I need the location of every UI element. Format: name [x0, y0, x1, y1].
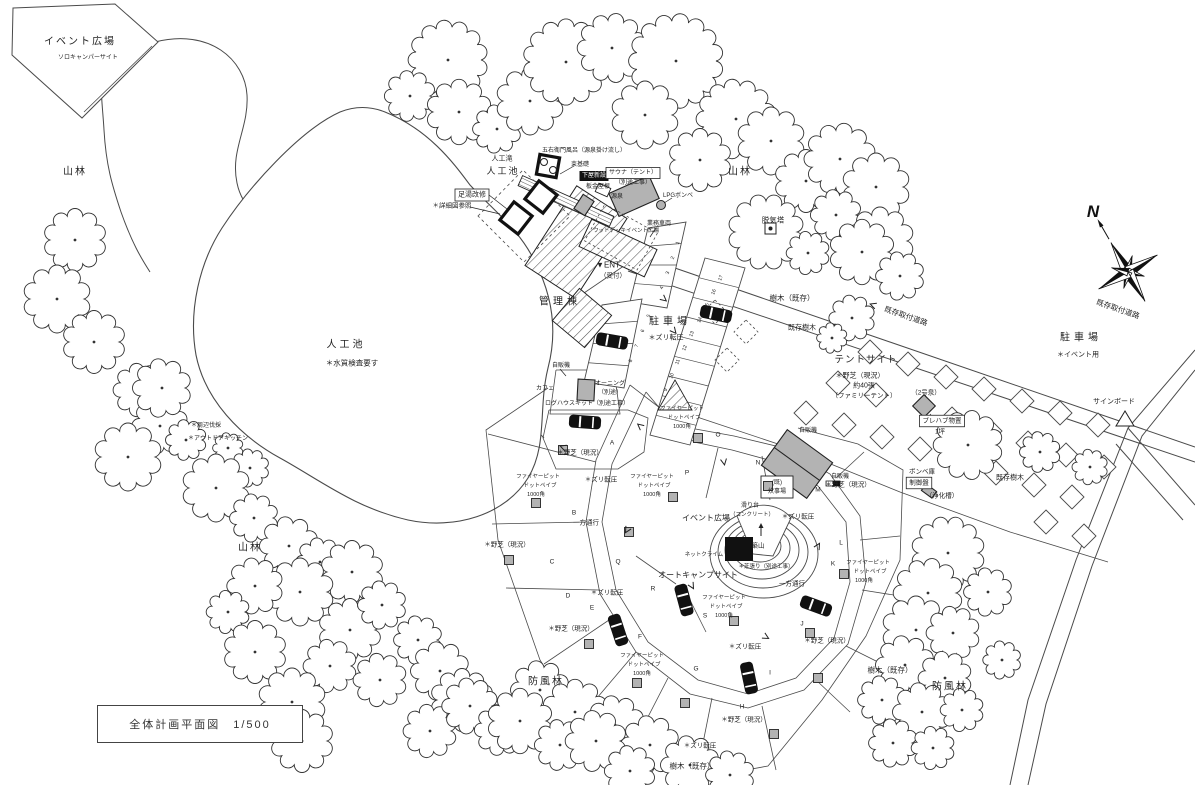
- tree-center-dot: [469, 705, 472, 708]
- map-label: ドットペイブ: [709, 602, 743, 610]
- map-label: （受付）: [600, 271, 626, 280]
- map-label: ＊ズリ転圧: [649, 333, 684, 342]
- site-line: [816, 680, 850, 712]
- tree-center-dot: [93, 341, 96, 344]
- map-label: ＊ズリ転圧: [591, 588, 624, 597]
- map-label: ＊野芝（現況）: [804, 636, 850, 645]
- tent-pad: [1060, 485, 1084, 509]
- tree-center-dot: [881, 699, 884, 702]
- map-label: 防風林: [932, 680, 968, 693]
- road-direction-mark: [721, 459, 728, 466]
- map-label: 既存取付道路: [883, 303, 929, 327]
- fire-pit: [694, 434, 703, 443]
- map-label: サウナ（テント）: [609, 168, 657, 176]
- fire-pit: [585, 640, 594, 649]
- tree-center-dot: [288, 545, 291, 548]
- road-edge: [1128, 428, 1195, 505]
- map-label: ＊ズリ転圧: [782, 512, 815, 521]
- tree-center-dot: [351, 571, 354, 574]
- gray-structure: [913, 395, 936, 418]
- map-label: ファイヤーピット: [660, 405, 704, 412]
- map-label: ＊野芝（現況）: [557, 448, 603, 457]
- map-label: ウッドデッキイベント広場: [593, 226, 660, 234]
- north-label: N: [1087, 202, 1100, 221]
- map-label: ドットペイブ: [637, 481, 671, 489]
- car-symbol: [799, 594, 834, 617]
- stall-number: 6: [640, 328, 647, 333]
- stall-number: 5: [646, 313, 653, 318]
- tent-pad: [908, 437, 932, 461]
- map-label: 人工池: [486, 165, 519, 176]
- tree-center-dot: [805, 180, 808, 183]
- fire-pit: [806, 629, 815, 638]
- map-label: ドットペイブ: [523, 481, 557, 489]
- site-letter: O: [715, 432, 720, 439]
- map-label: オートキャンプサイト: [658, 571, 738, 580]
- tree-center-dot: [835, 214, 838, 217]
- tree-center-dot: [291, 701, 294, 704]
- site-letter: K: [831, 561, 836, 568]
- tree-center-dot: [644, 114, 647, 117]
- title-text: 全体計画平面図 1/500: [129, 716, 271, 732]
- tree-center-dot: [961, 709, 964, 712]
- map-label: 源泉: [611, 192, 623, 200]
- gray-structure: [577, 379, 595, 401]
- map-label: 自販機: [799, 426, 817, 434]
- tree-center-dot: [319, 561, 322, 564]
- tent-pad: [972, 377, 996, 401]
- map-label: ＊詳細図参照: [433, 201, 473, 210]
- title-block: 全体計画平面図 1/500: [97, 705, 303, 743]
- site-letter: B: [572, 510, 576, 517]
- map-label: ファイヤーピット: [702, 594, 746, 601]
- tree-center-dot: [496, 128, 499, 131]
- site-letter: I: [769, 670, 771, 677]
- car-symbol: [674, 583, 695, 617]
- tree-center-dot: [574, 711, 577, 714]
- map-label: 樹木（既存）: [670, 761, 715, 771]
- map-label: 1000角: [715, 611, 733, 619]
- tree-center-dot: [861, 251, 864, 254]
- car-body: [799, 594, 834, 617]
- tree-center-dot: [770, 140, 773, 143]
- map-label: プレハブ物置: [923, 416, 963, 425]
- tree-center-dot: [952, 632, 955, 635]
- tree-center-dot: [699, 159, 702, 162]
- map-label: 既存樹木: [788, 323, 816, 332]
- tree-center-dot: [539, 689, 542, 692]
- tent-pad: [896, 352, 920, 376]
- tree-center-dot: [439, 670, 442, 673]
- tree-center-dot: [161, 387, 164, 390]
- map-label: ＊野芝（現況）: [836, 371, 885, 380]
- tree-center-dot: [987, 591, 990, 594]
- tree-center-dot: [565, 61, 568, 64]
- map-label: 制御盤: [909, 478, 929, 487]
- site-letter: E: [590, 605, 595, 612]
- tree-center-dot: [1089, 466, 1092, 469]
- map-label: （別途）: [598, 388, 622, 396]
- site-line: [706, 448, 718, 498]
- map-label: 築山: [752, 541, 765, 550]
- fire-pit: [681, 699, 690, 708]
- tent-pad: [794, 401, 818, 425]
- map-label: 山林: [63, 165, 87, 178]
- map-label: 既存樹木: [996, 473, 1024, 482]
- site-letter: R: [651, 586, 656, 593]
- tree-center-dot: [629, 770, 632, 773]
- road-edge: [1116, 444, 1183, 520]
- map-label: ファイヤーピット: [620, 652, 664, 659]
- tree-center-dot: [254, 651, 257, 654]
- site-letter: D: [566, 593, 571, 600]
- road-direction-mark: [636, 422, 644, 430]
- fire-pit: [814, 674, 823, 683]
- site-letter: S: [703, 613, 708, 620]
- fire-pit: [505, 556, 514, 565]
- map-label: 樹木（既存）: [868, 665, 913, 675]
- map-label: 人工滝: [492, 154, 513, 163]
- road-direction-mark: [762, 633, 770, 641]
- map-label: 防風林: [528, 675, 564, 688]
- map-label: 一方通行: [573, 518, 600, 527]
- tree-center-dot: [892, 742, 895, 745]
- map-label: 樹木（既存）: [770, 293, 815, 303]
- map-label: 自販機: [552, 361, 570, 369]
- map-label: 1坪: [935, 428, 946, 436]
- tree-center-dot: [807, 252, 810, 255]
- site-letter: P: [685, 470, 689, 477]
- tree-center-dot: [921, 711, 924, 714]
- map-label: 約40張: [853, 381, 875, 390]
- car-rear-window: [593, 417, 594, 428]
- car-body: [569, 414, 602, 429]
- map-label: 1000角: [855, 576, 873, 584]
- fire-pit: [840, 570, 849, 579]
- map-label: 1000角: [633, 669, 651, 677]
- map-label: ＊ズリ転圧: [729, 642, 762, 651]
- tree-center-dot: [967, 444, 970, 447]
- site-letter: G: [693, 666, 698, 673]
- car-body: [607, 613, 629, 647]
- tree-center-dot: [215, 487, 218, 490]
- road-direction-mark: [688, 582, 696, 590]
- net-climb-box: [725, 537, 753, 561]
- fire-pit: [633, 679, 642, 688]
- map-label: ネットクライム: [685, 551, 724, 558]
- tree-center-dot: [675, 60, 678, 63]
- tree-center-dot: [417, 639, 420, 642]
- map-label: ドットペイブ: [667, 413, 701, 421]
- site-letter: C: [550, 559, 555, 566]
- map-label: 駐車場: [1060, 331, 1102, 344]
- map-label: イベント広場: [44, 35, 116, 48]
- tree-center-dot: [379, 679, 382, 682]
- map-label: 1000角: [673, 422, 691, 430]
- tree-center-dot: [299, 591, 302, 594]
- tree-center-dot: [56, 298, 59, 301]
- road-edge: [1028, 370, 1195, 785]
- site-letter: F: [638, 634, 642, 641]
- fire-pit: [669, 493, 678, 502]
- tree-center-dot: [649, 744, 652, 747]
- map-label: ログハウスキット（別途工事）: [545, 399, 629, 407]
- map-label: 管理棟: [539, 295, 581, 308]
- map-label: 束基礎: [571, 160, 589, 168]
- tree-center-dot: [381, 604, 384, 607]
- map-label: ＊野芝（現況）: [825, 480, 871, 489]
- map-label: ファイヤーピット: [630, 473, 674, 480]
- tree-center-dot: [429, 730, 432, 733]
- map-label: 足湯改修: [458, 190, 486, 199]
- tree-center-dot: [74, 239, 77, 242]
- car-symbol: [569, 414, 602, 429]
- lpg-tank-icon: [657, 201, 666, 210]
- map-label: ＊芝張り（別途工事）: [738, 562, 793, 570]
- tent-pad: [934, 365, 958, 389]
- tree-center-dot: [249, 467, 252, 470]
- bath-structure: [536, 154, 559, 177]
- tree-center-dot: [409, 95, 412, 98]
- tree-center-dot: [1039, 451, 1042, 454]
- site-plan-page: Nイベント広場ソロキャンパーサイト山林山林山林人工滝人工池足湯改修＊詳細図参照人…: [0, 0, 1195, 785]
- tree-center-dot: [1001, 659, 1004, 662]
- map-label: 1000角: [527, 490, 545, 498]
- map-label: ▼ENT: [596, 261, 620, 270]
- tent-pad: [1034, 510, 1058, 534]
- tree-center-dot: [447, 59, 450, 62]
- tent-pad: [832, 413, 856, 437]
- tree-center-dot: [915, 629, 918, 632]
- map-label: イベント広場: [682, 513, 730, 523]
- map-label: 一方通行: [779, 579, 806, 588]
- map-label: ＊周辺伐採: [191, 421, 221, 429]
- map-label: ボンベ庫: [909, 467, 936, 476]
- tree-center-dot: [253, 517, 256, 520]
- car-symbol: [607, 613, 629, 647]
- map-label: 1000角: [643, 490, 661, 498]
- map-label: LPGボンベ: [663, 191, 693, 199]
- tent-pad: [1010, 389, 1034, 413]
- tree-center-dot: [839, 158, 842, 161]
- tree-center-dot: [899, 275, 902, 278]
- site-letter: H: [740, 704, 745, 711]
- car-body: [739, 661, 758, 695]
- tree-center-dot: [947, 552, 950, 555]
- map-label: ＊水質検査要す: [326, 358, 379, 368]
- tent-pad: [1072, 524, 1096, 548]
- tree-center-dot: [329, 665, 332, 668]
- site-line: [860, 536, 900, 540]
- map-label: テントサイト: [834, 355, 897, 366]
- map-label: ＊野芝（現況）: [484, 540, 530, 549]
- map-label: 炊事場: [768, 487, 786, 495]
- site-letter: L: [839, 540, 843, 547]
- tree-center-dot: [458, 111, 461, 114]
- map-label: カフェ: [536, 385, 554, 392]
- map-label: ソロキャンパーサイト: [58, 54, 118, 61]
- site-line: [506, 588, 600, 590]
- map-label: （ファミリーテント）: [832, 392, 897, 400]
- map-label: （浄化槽）: [926, 491, 959, 500]
- map-label: サインボード: [1093, 398, 1135, 406]
- car-body: [674, 583, 695, 617]
- map-label: 滑り台: [741, 501, 759, 509]
- site-line: [492, 522, 586, 524]
- tree-center-dot: [254, 585, 257, 588]
- car-windshield: [580, 416, 581, 427]
- tree-center-dot: [875, 186, 878, 189]
- tree-center-dot: [227, 611, 230, 614]
- stall-number: 7: [634, 343, 641, 348]
- tent-pad: [1022, 473, 1046, 497]
- map-label: ファイヤーピット: [846, 559, 890, 566]
- map-label: ファイヤーピット: [516, 473, 560, 480]
- map-label: （2号泉）: [911, 388, 941, 397]
- tent-pad-dashed: [734, 320, 758, 344]
- tree-center-dot: [851, 317, 854, 320]
- map-label: ＊イベント用: [1057, 351, 1099, 359]
- map-label: ドットペイブ: [853, 567, 887, 575]
- site-letter: N: [756, 460, 761, 467]
- map-label: 既存取付道路: [1095, 296, 1141, 320]
- map-label: 板金屋根: [586, 182, 610, 190]
- stall-number: 8: [628, 358, 635, 363]
- map-label: (既): [772, 479, 782, 486]
- degassing-tower-dot: [769, 227, 773, 231]
- site-letter: J: [800, 621, 803, 628]
- map-label: ＊アウトドアキッチン: [188, 434, 248, 442]
- map-label: ドットペイブ: [627, 660, 661, 668]
- car-symbol: [739, 661, 758, 695]
- map-label: （コンクリート）: [730, 511, 774, 518]
- tree-center-dot: [185, 439, 188, 442]
- map-label: 下屋新設: [582, 171, 606, 179]
- map-label: ＊ズリ転圧: [684, 741, 717, 750]
- signboard-triangle: [1116, 411, 1134, 426]
- map-label: ＊ズリ転圧: [585, 475, 618, 484]
- tree-center-dot: [611, 47, 614, 50]
- tree-center-dot: [729, 774, 732, 777]
- tree-center-dot: [159, 425, 162, 428]
- tree-center-dot: [927, 592, 930, 595]
- map-label: ＊野芝（現況）: [721, 715, 767, 724]
- map-label: 山林: [728, 165, 752, 178]
- tree-center-dot: [831, 337, 834, 340]
- tree-center-dot: [735, 118, 738, 121]
- map-label: 五右衛門風呂（源泉掛け流し）: [542, 146, 626, 154]
- tree-center-dot: [559, 744, 562, 747]
- map-label: 自販機: [831, 472, 849, 480]
- map-label: ＊野芝（現況）: [548, 624, 594, 633]
- tent-pad: [1048, 401, 1072, 425]
- tree-center-dot: [349, 629, 352, 632]
- map-label: 脱気塔: [762, 215, 785, 225]
- site-letter: Q: [615, 559, 620, 566]
- tree-center-dot: [519, 720, 522, 723]
- site-plan-drawing: Nイベント広場ソロキャンパーサイト山林山林山林人工滝人工池足湯改修＊詳細図参照人…: [0, 0, 1195, 785]
- map-label: 駐車場: [649, 315, 691, 328]
- fire-pit: [532, 499, 541, 508]
- tree-center-dot: [944, 677, 947, 680]
- tent-pad: [870, 425, 894, 449]
- site-letter: M: [815, 487, 820, 494]
- map-label: （別途工事）: [615, 178, 651, 186]
- site-letter: A: [610, 440, 615, 447]
- map-label: 業務車両: [647, 219, 671, 227]
- tree-center-dot: [127, 456, 130, 459]
- tree-center-dot: [932, 747, 935, 750]
- tree-center-dot: [595, 740, 598, 743]
- tree-center-dot: [529, 100, 532, 103]
- tree-center-dot: [227, 447, 230, 450]
- fire-pit: [770, 730, 779, 739]
- map-label: 人工池: [327, 338, 366, 351]
- map-label: オーニング: [595, 379, 625, 387]
- map-label: 山林: [238, 541, 262, 554]
